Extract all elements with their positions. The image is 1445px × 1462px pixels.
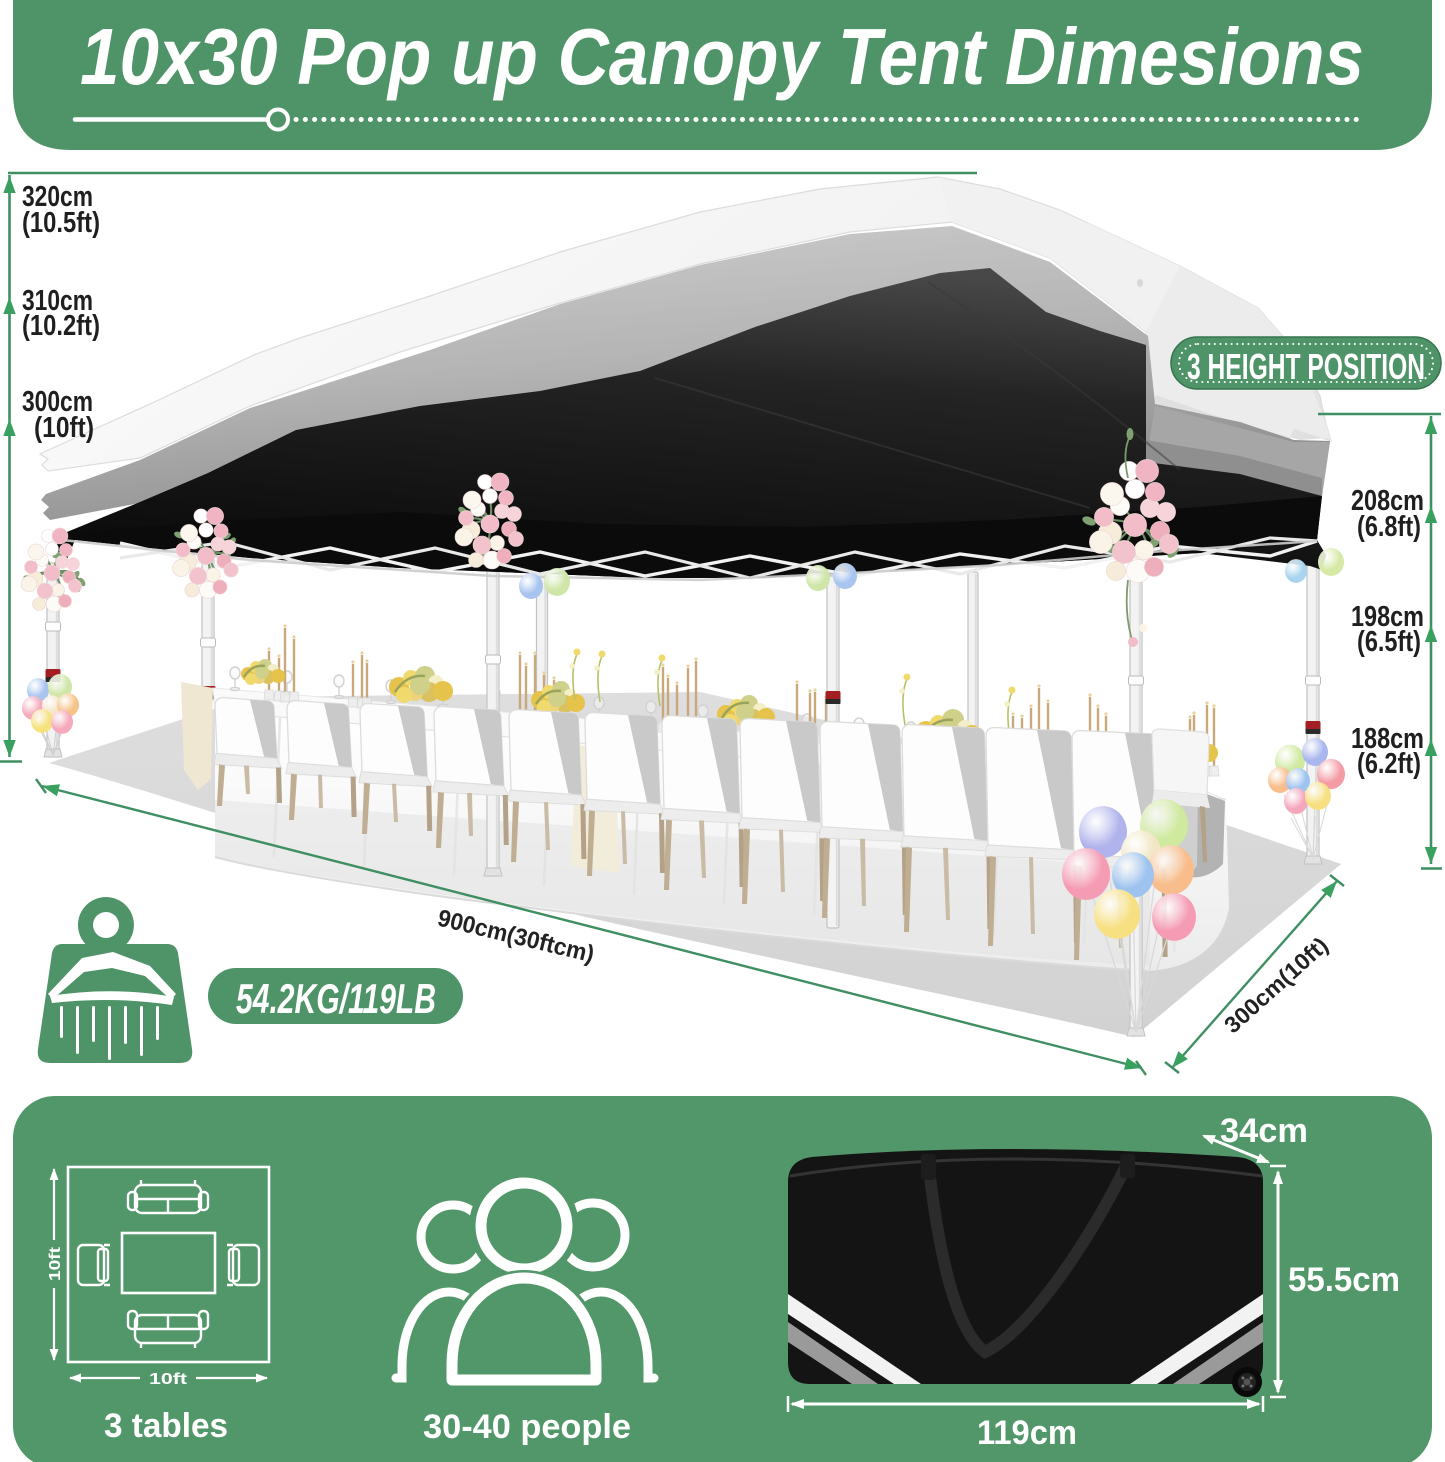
svg-text:(6.5ft): (6.5ft)	[1357, 626, 1421, 658]
svg-text:3 tables: 3 tables	[104, 1407, 228, 1445]
svg-text:(10ft): (10ft)	[34, 412, 94, 444]
svg-text:(6.2ft): (6.2ft)	[1357, 748, 1421, 780]
svg-text:3 HEIGHT POSITION: 3 HEIGHT POSITION	[1187, 346, 1425, 387]
svg-text:900cm(30ftcm): 900cm(30ftcm)	[435, 905, 597, 969]
svg-text:10ft: 10ft	[149, 1371, 188, 1388]
svg-text:119cm: 119cm	[977, 1414, 1077, 1452]
svg-text:10x30 Pop up Canopy Tent Dimes: 10x30 Pop up Canopy Tent Dimesions	[80, 12, 1364, 101]
svg-text:(6.8ft): (6.8ft)	[1357, 511, 1421, 543]
svg-text:34cm: 34cm	[1220, 1112, 1308, 1150]
svg-text:55.5cm: 55.5cm	[1288, 1261, 1400, 1299]
svg-text:(10.2ft): (10.2ft)	[22, 310, 100, 342]
svg-text:(10.5ft): (10.5ft)	[22, 207, 100, 239]
svg-text:30-40 people: 30-40 people	[423, 1408, 631, 1446]
svg-text:54.2KG/119LB: 54.2KG/119LB	[236, 975, 436, 1022]
svg-text:10ft: 10ft	[47, 1246, 64, 1281]
